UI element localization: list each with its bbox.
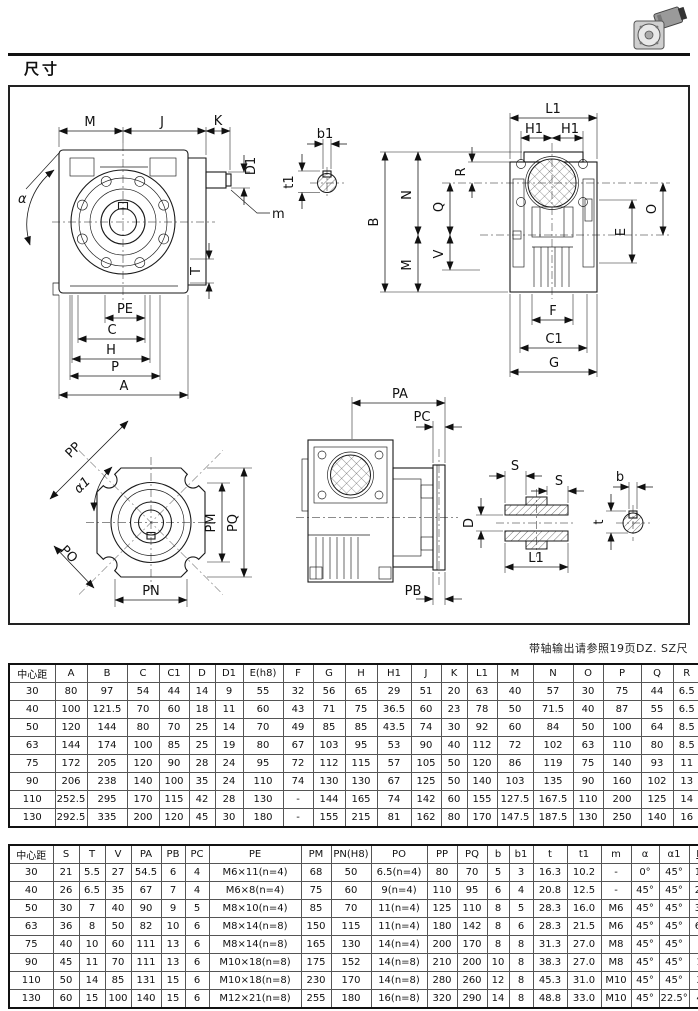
table-row: 50120144807025147049858543.5743092608450…	[9, 719, 698, 737]
table-cell: 15	[161, 990, 185, 1009]
column-header: F	[283, 664, 313, 683]
flange-view-drawing: PP α1 PO PM PQ PN	[50, 421, 252, 607]
table-cell: 14	[189, 683, 215, 701]
dim-label-H: H	[106, 343, 116, 358]
table-cell: 252.5	[55, 791, 87, 809]
column-header: D	[189, 664, 215, 683]
table-cell: 27.0	[567, 954, 601, 972]
table-cell: 43	[283, 701, 313, 719]
table-cell: 335	[87, 809, 127, 828]
table-cell: 36.5	[377, 701, 411, 719]
table-cell: 60	[411, 701, 441, 719]
table-cell: 7	[79, 900, 105, 918]
table-cell: 40	[497, 683, 533, 701]
table-cell: 6	[185, 954, 209, 972]
table-cell: 100	[159, 773, 189, 791]
dim-label-B: B	[367, 218, 382, 227]
table-cell: 85	[313, 719, 345, 737]
table-cell: 40	[105, 900, 131, 918]
table-cell: 93	[641, 755, 673, 773]
table-cell: 8	[487, 936, 509, 954]
table-cell: 30	[9, 864, 53, 882]
table-cell: 11(n=4)	[371, 918, 427, 936]
table-cell: 60	[53, 990, 79, 1009]
table-cell: 74	[377, 791, 411, 809]
dim-label-H1: H1	[561, 122, 579, 137]
table-cell: 260	[457, 972, 487, 990]
table-cell: 6.2	[689, 918, 698, 936]
table-cell: 140	[467, 773, 497, 791]
table-cell: 54.5	[131, 864, 161, 882]
table-cell: 68	[301, 864, 331, 882]
table-cell: 140	[603, 755, 641, 773]
table-cell: 72	[283, 755, 313, 773]
table-cell: 24	[215, 755, 243, 773]
table-cell: 50	[441, 773, 467, 791]
table-cell: 16.0	[567, 900, 601, 918]
table-cell: 140	[131, 990, 161, 1009]
table-cell: 110	[573, 791, 603, 809]
dim-label-PE: PE	[117, 302, 133, 317]
column-header: PP	[427, 845, 457, 864]
table-row: 50307409095M8×10(n=4)857011(n=4)12511085…	[9, 900, 698, 918]
table-cell: 50	[9, 900, 53, 918]
table-cell: 152	[331, 954, 371, 972]
column-header: PE	[209, 845, 301, 864]
table-row: 40266.5356774M6×8(n=4)75609(n=4)11095642…	[9, 882, 698, 900]
table-cell: 35	[189, 773, 215, 791]
column-header: α1	[659, 845, 689, 864]
table-cell: 125	[427, 900, 457, 918]
table-cell: 31.3	[533, 936, 567, 954]
table-cell: 162	[411, 809, 441, 828]
side-view-drawing: L1 H1 H1 B N M Q V R O E F	[367, 102, 672, 377]
table-cell: 30	[441, 719, 467, 737]
table-cell: 50	[331, 864, 371, 882]
table-row: 7517220512090282495721121155710550120861…	[9, 755, 698, 773]
drawing-panel: M J K D1 m α T PE	[8, 85, 690, 625]
table-cell: 45°	[659, 900, 689, 918]
table-cell: 28.3	[533, 918, 567, 936]
table-cell: 45.3	[533, 972, 567, 990]
table-cell: 90	[573, 773, 603, 791]
table-cell: 28	[189, 755, 215, 773]
table-cell: 9(n=4)	[371, 882, 427, 900]
table-cell: M6	[601, 900, 631, 918]
table-cell: 110	[243, 773, 283, 791]
table-cell: 140	[127, 773, 159, 791]
table-cell: 14	[215, 719, 243, 737]
table-cell: 125	[641, 791, 673, 809]
table-cell: 70	[105, 954, 131, 972]
column-header: M	[497, 664, 533, 683]
table-cell: 155	[467, 791, 497, 809]
table-row: 3080975444149553256652951206340573075446…	[9, 683, 698, 701]
table-cell: 50	[497, 701, 533, 719]
column-header: PA	[131, 845, 161, 864]
dim-label-H1: H1	[525, 122, 543, 137]
column-header: PC	[185, 845, 209, 864]
dim-label-PA: PA	[392, 387, 408, 402]
table-cell: 70	[243, 719, 283, 737]
table-cell: 100	[603, 719, 641, 737]
table-cell: 40	[9, 882, 53, 900]
table-cell: 20	[441, 683, 467, 701]
technical-drawing: M J K D1 m α T PE	[10, 87, 688, 623]
table-cell: 170	[331, 972, 371, 990]
table-cell: 53	[377, 737, 411, 755]
table-cell: 16	[673, 809, 698, 828]
header-divider	[8, 53, 690, 56]
table-cell: 250	[603, 809, 641, 828]
table-cell: 8	[509, 990, 533, 1009]
table-cell: 90	[9, 773, 55, 791]
table-cell: 23	[441, 701, 467, 719]
table-row: 130292.53352001204530180-155215811628017…	[9, 809, 698, 828]
column-header: J	[411, 664, 441, 683]
table-cell: 290	[457, 990, 487, 1009]
table-cell: 295	[87, 791, 127, 809]
table-cell: 21	[53, 864, 79, 882]
table-cell: M10×18(n=8)	[209, 972, 301, 990]
table-cell: 40	[9, 701, 55, 719]
table-cell: 60	[243, 701, 283, 719]
column-header: PM	[301, 845, 331, 864]
table-cell: 11	[215, 701, 243, 719]
column-header: m	[601, 845, 631, 864]
dim-label-L1: L1	[545, 102, 561, 117]
table-cell: 43.5	[377, 719, 411, 737]
table-row: 40100121.5706018116043717536.56023785071…	[9, 701, 698, 719]
table-cell: 63	[573, 737, 603, 755]
table-cell: 40	[573, 701, 603, 719]
table-cell: 45°	[659, 936, 689, 954]
table-cell: 50	[105, 918, 131, 936]
table-cell: 22.5°	[659, 990, 689, 1009]
header-row: 中心距STVPAPBPCPEPMPN(H8)POPPPQbb1tt1mαα1Kg	[9, 845, 698, 864]
table-cell: M8	[601, 936, 631, 954]
table-cell: 45°	[631, 882, 659, 900]
table-cell: 14(n=4)	[371, 936, 427, 954]
column-header: T	[79, 845, 105, 864]
table-cell: 5	[509, 900, 533, 918]
table-cell: 205	[87, 755, 127, 773]
table-cell: 63	[467, 683, 497, 701]
table-cell: 85	[105, 972, 131, 990]
dim-label-b1: b1	[317, 127, 334, 142]
table-cell: M8×14(n=8)	[209, 918, 301, 936]
table-cell: 25	[189, 737, 215, 755]
table-cell: 45°	[631, 990, 659, 1009]
table-cell: 14	[673, 791, 698, 809]
table-cell: 175	[301, 954, 331, 972]
column-header: PQ	[457, 845, 487, 864]
table-cell: 75	[573, 755, 603, 773]
table-cell: 130	[573, 809, 603, 828]
table-cell: 8	[509, 954, 533, 972]
table-cell: 31.0	[567, 972, 601, 990]
table-cell: 15	[161, 972, 185, 990]
dim-label-alpha: α	[18, 192, 27, 207]
table-cell: 63	[9, 737, 55, 755]
column-header: A	[55, 664, 87, 683]
dim-label-V: V	[432, 249, 447, 258]
dim-label-J: J	[159, 115, 164, 130]
table-cell: 33.0	[567, 990, 601, 1009]
column-header: V	[105, 845, 131, 864]
table-cell: 5.5	[79, 864, 105, 882]
table-cell: M6×8(n=4)	[209, 882, 301, 900]
table-cell: 140	[641, 809, 673, 828]
table-cell: 30	[53, 900, 79, 918]
table-cell: 75	[345, 701, 377, 719]
table-cell: 4	[185, 864, 209, 882]
column-header: Kg	[689, 845, 698, 864]
table-row: 90451170111136M10×18(n=8)17515214(n=8)21…	[9, 954, 698, 972]
table-cell: 120	[467, 755, 497, 773]
table-cell: 80	[641, 737, 673, 755]
table-cell: 54	[127, 683, 159, 701]
table-cell: 8	[509, 936, 533, 954]
table-cell: 60	[497, 719, 533, 737]
table-cell: 13	[689, 954, 698, 972]
table-row: 110252.52951701154228130-144165741426015…	[9, 791, 698, 809]
table-cell: 131	[131, 972, 161, 990]
table-cell: 144	[87, 719, 127, 737]
table-cell: 10.2	[567, 864, 601, 882]
dim-label-C: C	[107, 323, 116, 338]
table-cell: 110	[457, 900, 487, 918]
table-cell: 0°	[631, 864, 659, 882]
table-cell: 29	[377, 683, 411, 701]
table-cell: M10	[601, 972, 631, 990]
table-cell: 6	[185, 936, 209, 954]
table-cell: 67	[131, 882, 161, 900]
table-cell: 74	[283, 773, 313, 791]
table-cell: 6	[487, 882, 509, 900]
table-cell: 9	[215, 683, 243, 701]
table-cell: 11(n=4)	[371, 900, 427, 918]
table-cell: 60	[441, 791, 467, 809]
table-cell: 24	[215, 773, 243, 791]
table-cell: -	[601, 882, 631, 900]
table-cell: 100	[105, 990, 131, 1009]
table-cell: 80	[55, 683, 87, 701]
table-cell: 6	[185, 918, 209, 936]
dim-label-E: E	[614, 228, 629, 236]
table-cell: 25	[189, 719, 215, 737]
table-cell: 48	[689, 990, 698, 1009]
table-cell: M6×11(n=4)	[209, 864, 301, 882]
product-photo-gearbox	[626, 5, 692, 55]
table-cell: 2.3	[689, 882, 698, 900]
dim-label-PQ: PQ	[226, 514, 241, 532]
table-cell: 45	[189, 809, 215, 828]
table-cell: 130	[9, 990, 53, 1009]
output-side-view-drawing: PA PC PB	[296, 387, 462, 605]
table-cell: 28	[215, 791, 243, 809]
table-cell: 100	[127, 737, 159, 755]
table-cell: 110	[603, 737, 641, 755]
table-cell: 8.5	[673, 719, 698, 737]
table-cell: 75	[301, 882, 331, 900]
column-header: S	[53, 845, 79, 864]
table-cell: 206	[55, 773, 87, 791]
table-cell: 6.5	[79, 882, 105, 900]
table-cell: 80	[243, 737, 283, 755]
table-cell: 90	[159, 755, 189, 773]
page-title: 尺寸	[24, 58, 60, 79]
table-row: 30215.52754.564M6×11(n=4)68506.5(n=4)807…	[9, 864, 698, 882]
table-cell: 50	[573, 719, 603, 737]
table-cell: 102	[533, 737, 573, 755]
table-cell: M8×14(n=8)	[209, 936, 301, 954]
table-cell: 50	[9, 719, 55, 737]
table-cell: 40	[441, 737, 467, 755]
table-cell: 45°	[659, 918, 689, 936]
dim-label-G: G	[549, 356, 559, 371]
table-cell: M8	[601, 954, 631, 972]
table-cell: 10	[161, 918, 185, 936]
table-cell: 142	[411, 791, 441, 809]
dim-label-M: M	[84, 115, 95, 130]
dim-label-D: D	[462, 518, 477, 528]
table-cell: 5	[487, 864, 509, 882]
table-cell: 45°	[631, 900, 659, 918]
column-header: Q	[641, 664, 673, 683]
table-cell: 28.3	[533, 900, 567, 918]
table-cell: 26	[53, 882, 79, 900]
table-cell: 70	[159, 719, 189, 737]
table-cell: 51	[411, 683, 441, 701]
table-cell: 200	[127, 809, 159, 828]
table-cell: 9	[161, 900, 185, 918]
table-row: 75401060111136M8×14(n=8)16513014(n=4)200…	[9, 936, 698, 954]
table-cell: 30	[573, 683, 603, 701]
dim-label-A: A	[120, 379, 129, 394]
table-cell: 127.5	[497, 791, 533, 809]
table-cell: 21.5	[567, 918, 601, 936]
dim-label-M: M	[400, 259, 415, 270]
table-cell: 80	[441, 809, 467, 828]
table-cell: 165	[301, 936, 331, 954]
table-cell: 45°	[631, 954, 659, 972]
table-cell: 130	[345, 773, 377, 791]
table-cell: 12	[487, 972, 509, 990]
table-cell: 90	[411, 737, 441, 755]
table-cell: 60	[331, 882, 371, 900]
table-cell: 215	[345, 809, 377, 828]
dim-label-m: m	[272, 207, 285, 222]
table-cell: 120	[159, 809, 189, 828]
table-cell: 3	[509, 864, 533, 882]
table-cell: 6.5(n=4)	[371, 864, 427, 882]
dim-label-F: F	[549, 304, 556, 319]
table-cell: 112	[313, 755, 345, 773]
dim-label-b: b	[616, 470, 624, 485]
dim-label-PC: PC	[414, 410, 431, 425]
table-cell: 45°	[631, 918, 659, 936]
table-cell: 8	[509, 972, 533, 990]
table-cell: 49	[283, 719, 313, 737]
table-cell: 67	[283, 737, 313, 755]
dim-label-PN: PN	[142, 584, 160, 599]
table-cell: 110	[9, 791, 55, 809]
table-cell: 112	[467, 737, 497, 755]
table-cell: 16.3	[533, 864, 567, 882]
table-cell: 67	[377, 773, 411, 791]
table-cell: 130	[331, 936, 371, 954]
table-cell: 320	[427, 990, 457, 1009]
table-cell: 90	[131, 900, 161, 918]
table-cell: 85	[301, 900, 331, 918]
table-cell: 87	[603, 701, 641, 719]
dimensions-table-2: 中心距STVPAPBPCPEPMPN(H8)POPPPQbb1tt1mαα1Kg…	[8, 844, 698, 1009]
table-cell: 142	[457, 918, 487, 936]
table-cell: 4	[509, 882, 533, 900]
table-cell: 44	[159, 683, 189, 701]
table-cell: 35	[689, 972, 698, 990]
column-header: B	[87, 664, 127, 683]
dimensions-table-1: 中心距ABCC1DD1E(h8)FGHH1JKL1MNOPQR308097544…	[8, 663, 698, 828]
table-cell: 56	[313, 683, 345, 701]
table-cell: 125	[411, 773, 441, 791]
dim-label-C1: C1	[545, 332, 562, 347]
table-cell: 130	[313, 773, 345, 791]
dim-label-S: S	[511, 459, 519, 474]
hollow-shaft-detail-drawing: S S D L1	[462, 459, 584, 573]
table-cell: 150	[301, 918, 331, 936]
table-cell: 6.5	[673, 701, 698, 719]
table-cell: 210	[427, 954, 457, 972]
column-header: α	[631, 845, 659, 864]
table-cell: 90	[9, 954, 53, 972]
dim-label-Q: Q	[432, 202, 447, 212]
column-header: t1	[567, 845, 601, 864]
table-cell: 187.5	[533, 809, 573, 828]
table-cell: 71.5	[533, 701, 573, 719]
table-cell: 14(n=8)	[371, 972, 427, 990]
table-cell: 30	[215, 809, 243, 828]
output-keyway-detail-drawing: b t	[592, 470, 653, 550]
table-cell: -	[601, 864, 631, 882]
table-cell: M8×10(n=4)	[209, 900, 301, 918]
table-cell: 57	[533, 683, 573, 701]
column-header: PO	[371, 845, 427, 864]
dim-label-P: P	[111, 360, 119, 375]
dim-label-D1: D1	[244, 157, 259, 175]
dim-label-L1: L1	[528, 551, 544, 566]
table-cell: 110	[9, 972, 53, 990]
table-row: 9020623814010035241107413013067125501401…	[9, 773, 698, 791]
table-cell: 111	[131, 954, 161, 972]
table-row: 6314417410085251980671039553904011272102…	[9, 737, 698, 755]
table-cell: 180	[243, 809, 283, 828]
table-cell: 45°	[659, 954, 689, 972]
column-header: PN(H8)	[331, 845, 371, 864]
table-cell: 65	[345, 683, 377, 701]
table-cell: 36	[53, 918, 79, 936]
table-cell: 115	[331, 918, 371, 936]
table-cell: 144	[55, 737, 87, 755]
table-cell: 103	[313, 737, 345, 755]
table-cell: M10	[601, 990, 631, 1009]
dim-label-PO: PO	[57, 543, 80, 566]
table-cell: 27	[105, 864, 131, 882]
table-cell: 7	[161, 882, 185, 900]
column-header: K	[441, 664, 467, 683]
table-cell: 200	[457, 954, 487, 972]
